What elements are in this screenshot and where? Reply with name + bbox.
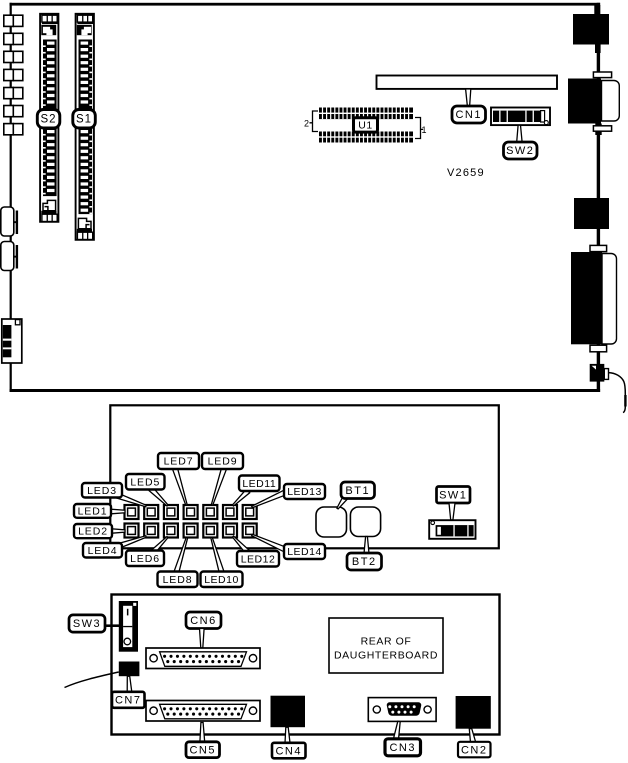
svg-text:LED9: LED9 bbox=[208, 456, 238, 468]
svg-text:S1: S1 bbox=[76, 114, 92, 126]
svg-text:LED8: LED8 bbox=[163, 574, 193, 586]
svg-text:LED13: LED13 bbox=[287, 486, 322, 498]
svg-text:LED11: LED11 bbox=[242, 478, 276, 490]
svg-text:CN5: CN5 bbox=[189, 744, 216, 756]
svg-text:SW3: SW3 bbox=[73, 618, 101, 630]
svg-text:BT1: BT1 bbox=[345, 485, 370, 497]
svg-text:V2659: V2659 bbox=[447, 167, 485, 179]
svg-text:CN4: CN4 bbox=[275, 745, 302, 757]
svg-text:CN2: CN2 bbox=[461, 744, 488, 756]
svg-text:U1: U1 bbox=[358, 120, 373, 132]
svg-text:LED5: LED5 bbox=[130, 476, 160, 488]
svg-text:LED12: LED12 bbox=[241, 553, 276, 565]
svg-text:LED7: LED7 bbox=[164, 456, 194, 468]
svg-text:LED14: LED14 bbox=[287, 546, 322, 558]
svg-text:LED3: LED3 bbox=[87, 485, 117, 497]
svg-text:LED4: LED4 bbox=[88, 545, 118, 557]
svg-text:DAUGHTERBOARD: DAUGHTERBOARD bbox=[334, 650, 438, 662]
svg-text:S2: S2 bbox=[41, 114, 57, 126]
svg-text:CN3: CN3 bbox=[389, 742, 416, 754]
svg-text:2: 2 bbox=[304, 119, 309, 129]
svg-text:CN7: CN7 bbox=[115, 695, 142, 707]
svg-text:CN1: CN1 bbox=[455, 109, 482, 121]
svg-text:CN6: CN6 bbox=[190, 615, 217, 627]
svg-text:LED6: LED6 bbox=[130, 553, 160, 565]
svg-text:LED2: LED2 bbox=[78, 526, 108, 538]
svg-text:SW2: SW2 bbox=[506, 145, 534, 157]
svg-text:SW1: SW1 bbox=[439, 489, 467, 501]
svg-text:BT2: BT2 bbox=[352, 556, 377, 568]
svg-text:REAR OF: REAR OF bbox=[361, 636, 412, 648]
svg-text:1: 1 bbox=[422, 125, 427, 135]
svg-text:LED1: LED1 bbox=[78, 505, 108, 517]
svg-text:LED10: LED10 bbox=[204, 574, 239, 586]
